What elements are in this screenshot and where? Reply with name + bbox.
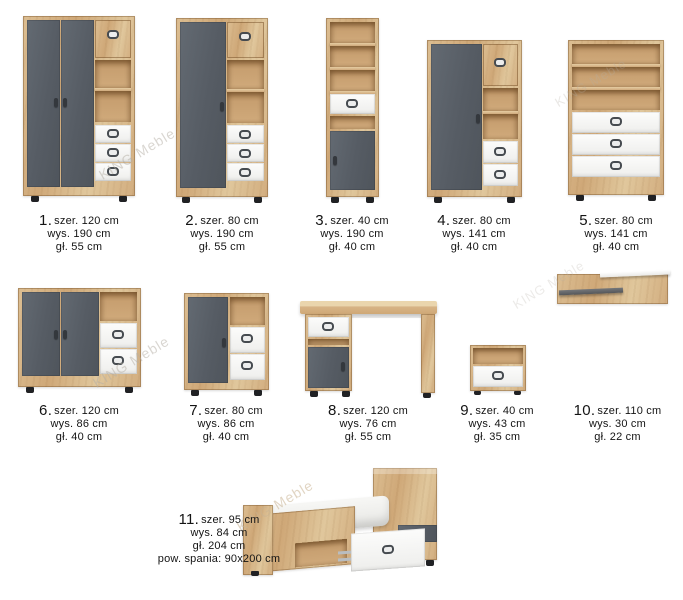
product-7-sideboard-image [184,293,269,395]
drawer-handle [610,139,622,148]
foot [26,387,34,393]
label-line: gł. 40 cm [171,431,281,444]
foot [514,391,521,395]
foot [310,391,318,397]
foot [648,195,656,201]
desk-top [300,301,437,314]
product-number: 2. [185,212,198,229]
foot [342,391,350,397]
drawer-handle [346,99,358,108]
foot [31,196,39,202]
foot [434,197,442,203]
drawer-handle [107,30,119,39]
product-number: 3. [315,212,328,229]
product-10-wall-shelf-image [556,270,672,308]
product-3-label: 3.szer. 40 cm wys. 190 cm gł. 40 cm [297,214,407,254]
small-wood-door [95,20,131,58]
product-number: 11. [178,511,199,528]
open-shelf [230,297,265,325]
label-line: wys. 86 cm [171,418,281,431]
door-handle [54,330,58,339]
label-line: gł. 40 cm [297,241,407,254]
open-shelf [483,114,518,139]
product-6-label: 6.szer. 120 cm wys. 86 cm gł. 40 cm [24,404,134,444]
door-handle [476,114,480,123]
label-line: wys. 84 cm [148,527,290,540]
drawer-handle [112,330,124,339]
foot [507,197,515,203]
open-shelf [330,116,375,129]
under-desk-shadow [352,314,422,318]
open-shelf [330,46,375,67]
door-handle [222,338,226,347]
foot [119,196,127,202]
drawer-handle [494,147,506,156]
foot [426,560,434,566]
drawer-handle [610,117,622,126]
under-bed-drawer [351,528,425,571]
open-shelf [227,92,264,123]
cabinet-door [431,44,482,190]
label-line: wys. 190 cm [167,228,277,241]
drawer-handle [494,58,506,67]
drawer-handle [239,168,251,177]
door-handle [54,98,58,107]
desk-side-panel [421,314,435,393]
door-handle [63,330,67,339]
drawer-handle [112,356,124,365]
label-line: gł. 55 cm [24,241,134,254]
open-shelf [227,60,264,89]
open-shelf [572,44,660,64]
product-8-desk-image [300,301,437,398]
open-shelf [100,292,137,321]
open-shelf [483,88,518,111]
foot [191,390,199,396]
label-line: gł. 40 cm [561,241,671,254]
foot [125,387,133,393]
label-line: wys. 86 cm [24,418,134,431]
drawer-handle [107,148,119,157]
product-5-label: 5.szer. 80 cm wys. 141 cm gł. 40 cm [561,214,671,254]
drawer-handle [382,545,394,555]
foot [576,195,584,201]
foot [254,197,262,203]
open-shelf [95,60,131,88]
drawer-handle [241,361,253,370]
desk-pedestal [305,314,352,391]
label-line: 11.szer. 95 cm [148,513,290,527]
open-shelf [95,91,131,122]
open-slot [308,339,349,345]
drawer-handle [107,129,119,138]
product-number: 9. [460,402,473,419]
label-line: wys. 141 cm [561,228,671,241]
label-line: 1.szer. 120 cm [24,214,134,228]
label-line: 8.szer. 120 cm [313,404,423,418]
label-line: wys. 30 cm [560,418,675,431]
product-11-label: 11.szer. 95 cm wys. 84 cm gł. 204 cm pow… [148,513,290,566]
door-handle [341,362,345,371]
label-line: pow. spania: 90x200 cm [148,553,290,566]
label-line: 7.szer. 80 cm [171,404,281,418]
open-shelf [572,90,660,110]
door-handle [220,102,224,111]
product-10-label: 10.szer. 110 cm wys. 30 cm gł. 22 cm [560,404,675,444]
open-shelf [572,67,660,87]
drawer-handle [322,322,334,331]
product-number: 8. [328,402,341,419]
drawer-handle [239,130,251,139]
door-handle [333,156,337,165]
foot [331,197,339,203]
label-line: wys. 190 cm [297,228,407,241]
drawer-handle [239,149,251,158]
label-line: gł. 55 cm [167,241,277,254]
label-line: wys. 76 cm [313,418,423,431]
product-number: 5. [579,212,592,229]
product-number: 4. [437,212,450,229]
open-shelf [330,22,375,43]
foot [251,571,259,576]
product-number: 10. [574,402,596,419]
door-handle [63,98,67,107]
product-9-label: 9.szer. 40 cm wys. 43 cm gł. 35 cm [442,404,552,444]
open-shelf [473,348,523,364]
drawer-handle [241,334,253,343]
label-line: 5.szer. 80 cm [561,214,671,228]
foot [474,391,481,395]
label-line: gł. 35 cm [442,431,552,444]
label-line: gł. 40 cm [24,431,134,444]
drawer-handle [239,32,251,41]
foot [423,393,431,398]
product-4-label: 4.szer. 80 cm wys. 141 cm gł. 40 cm [419,214,529,254]
label-line: wys. 141 cm [419,228,529,241]
label-line: gł. 40 cm [419,241,529,254]
product-2-wardrobe-image [176,18,268,202]
product-3-bookcase-image [326,18,379,202]
label-line: wys. 43 cm [442,418,552,431]
label-line: gł. 55 cm [313,431,423,444]
product-7-label: 7.szer. 80 cm wys. 86 cm gł. 40 cm [171,404,281,444]
product-number: 7. [189,402,202,419]
foot [254,390,262,396]
label-line: 10.szer. 110 cm [560,404,675,418]
product-number: 1. [39,212,52,229]
foot [366,197,374,203]
product-8-label: 8.szer. 120 cm wys. 76 cm gł. 55 cm [313,404,423,444]
label-line: 2.szer. 80 cm [167,214,277,228]
product-1-wardrobe-image [23,16,135,202]
drawer-handle [492,371,504,380]
furniture-catalog-page: KING Meble KING Meble KING Meble KING Me… [0,0,683,600]
label-line: 6.szer. 120 cm [24,404,134,418]
open-shelf [330,70,375,91]
drawer-handle [494,170,506,179]
label-line: 9.szer. 40 cm [442,404,552,418]
product-1-label: 1.szer. 120 cm wys. 190 cm gł. 55 cm [24,214,134,254]
drawer-handle [107,167,119,176]
product-5-bookcase-image [568,40,664,200]
label-line: 3.szer. 40 cm [297,214,407,228]
label-line: 4.szer. 80 cm [419,214,529,228]
foot [182,197,190,203]
label-line: wys. 190 cm [24,228,134,241]
headboard-top-edge [373,468,437,474]
product-4-cabinet-image [427,40,522,202]
product-2-label: 2.szer. 80 cm wys. 190 cm gł. 55 cm [167,214,277,254]
label-line: gł. 204 cm [148,540,290,553]
product-6-sideboard-image [18,288,141,392]
product-9-nightstand-image [470,345,526,395]
label-line: gł. 22 cm [560,431,675,444]
drawer-handle [610,161,622,170]
product-number: 6. [39,402,52,419]
